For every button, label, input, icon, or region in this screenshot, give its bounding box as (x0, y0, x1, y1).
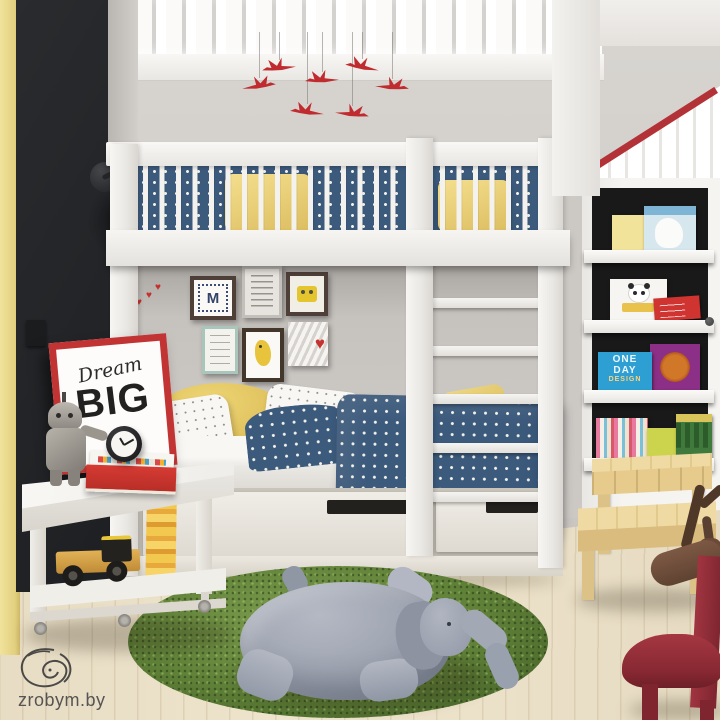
mobile-string (307, 32, 308, 104)
book-yeti (644, 206, 696, 250)
bed-post-end (538, 138, 563, 568)
book-title-line: DESIGN (598, 376, 652, 383)
wooden-toy-car (53, 532, 165, 592)
drawer-handle (327, 500, 413, 514)
animal-illustration (255, 340, 271, 366)
gallery-frame-robot (286, 272, 328, 316)
ladder-rung (428, 492, 543, 502)
bed-post-right (406, 138, 433, 556)
cart-caster (198, 592, 212, 614)
watermark-text: zrobym.by (18, 690, 106, 711)
ceiling-right (598, 0, 720, 46)
toy-car-cab (101, 535, 132, 562)
ladder-rung (428, 346, 543, 356)
mobile-string (352, 32, 353, 106)
ladder-rung (428, 443, 543, 453)
shelf-ledge-1 (584, 250, 714, 263)
gallery-frame-quote (242, 266, 282, 318)
frame-post-right (552, 0, 600, 196)
kids-room-render: ONE DAY DESIGN M ♥ ♥ ♥ ♥ ♥ ♥ (0, 0, 720, 720)
robot-toy-leg (68, 470, 80, 486)
panda-illustration (628, 284, 650, 303)
robot-toy-head (48, 402, 82, 429)
book-title-line: ONE (598, 355, 652, 366)
book-title-line: DAY (598, 366, 652, 377)
shelf-ledge-2 (584, 320, 714, 333)
heart-icon: ♥ (315, 334, 325, 354)
toy-car-wheel (62, 565, 84, 587)
book-purple (650, 344, 700, 392)
elephant-eye (447, 622, 451, 626)
shelf-ledge-3 (584, 390, 714, 403)
gallery-frame-animals (242, 328, 284, 382)
wall-corner-trim (108, 0, 138, 150)
monogram-letter: M (198, 284, 228, 312)
panda-scarf (622, 303, 654, 312)
clock-face (111, 431, 137, 457)
ladder-rung (428, 298, 543, 308)
gallery-frame-monogram: M (190, 276, 236, 320)
mobile-string (279, 32, 280, 60)
wardrobe-knob (705, 317, 714, 326)
gallery-frame-script (202, 326, 238, 374)
heart-icon: ♥ (155, 282, 161, 293)
light-switch (26, 320, 46, 346)
toy-car-wheel (106, 560, 128, 582)
heart-icon: ♥ (146, 290, 152, 301)
robot-illustration (297, 286, 317, 302)
script-text-lines (210, 335, 230, 365)
quote-text-lines (251, 275, 273, 309)
skylight-ceiling (92, 0, 602, 60)
watermark: zrobym.by (14, 644, 194, 716)
gallery-frame-chevron-heart: ♥ (288, 322, 328, 366)
stool-leg (582, 546, 594, 600)
book-red (653, 295, 700, 321)
mobile-string (322, 32, 323, 72)
book-yeti-title-band (644, 206, 696, 215)
bunk-rail-spindles (110, 164, 562, 234)
red-book (86, 464, 177, 494)
ladder-rung (428, 394, 543, 404)
book-striped (596, 418, 648, 459)
top-bunk-fascia (106, 230, 570, 266)
cart-caster (118, 606, 132, 628)
mobile-string (259, 32, 260, 78)
bunk-top-rail (106, 142, 566, 166)
red-chair-leg (700, 700, 714, 720)
robot-toy-body (46, 428, 86, 472)
cart-caster (34, 614, 48, 636)
book-one-day-design: ONE DAY DESIGN (598, 352, 652, 392)
robot-toy-leg (50, 470, 62, 486)
mobile-string (362, 32, 363, 59)
mobile-string (392, 32, 393, 79)
book-yeti-illustration (655, 218, 683, 248)
alarm-clock (106, 426, 142, 462)
zrobym-logo-icon (14, 644, 78, 696)
book-yellow (612, 215, 645, 250)
book-purple-circle (660, 352, 690, 382)
red-chair-leg (642, 684, 658, 720)
ceiling-fascia (86, 54, 604, 81)
